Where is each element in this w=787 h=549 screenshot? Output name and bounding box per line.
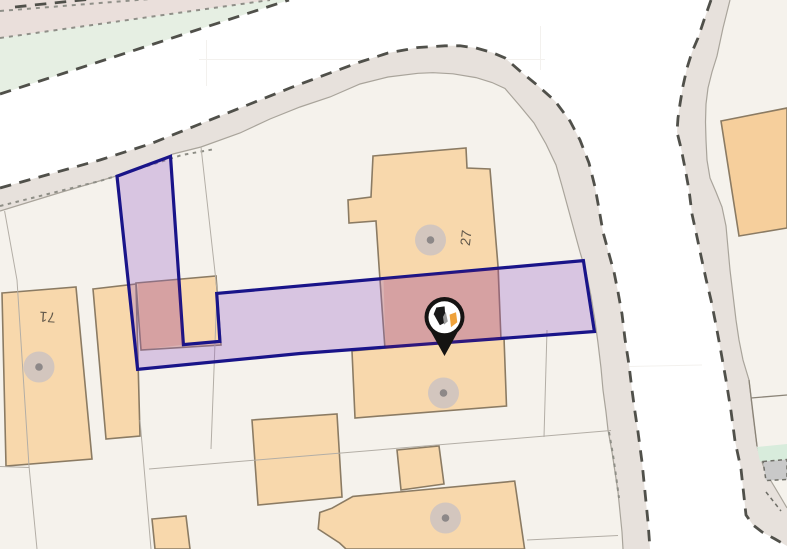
svg-text:27: 27 [457, 229, 475, 247]
svg-text:71: 71 [39, 308, 56, 325]
